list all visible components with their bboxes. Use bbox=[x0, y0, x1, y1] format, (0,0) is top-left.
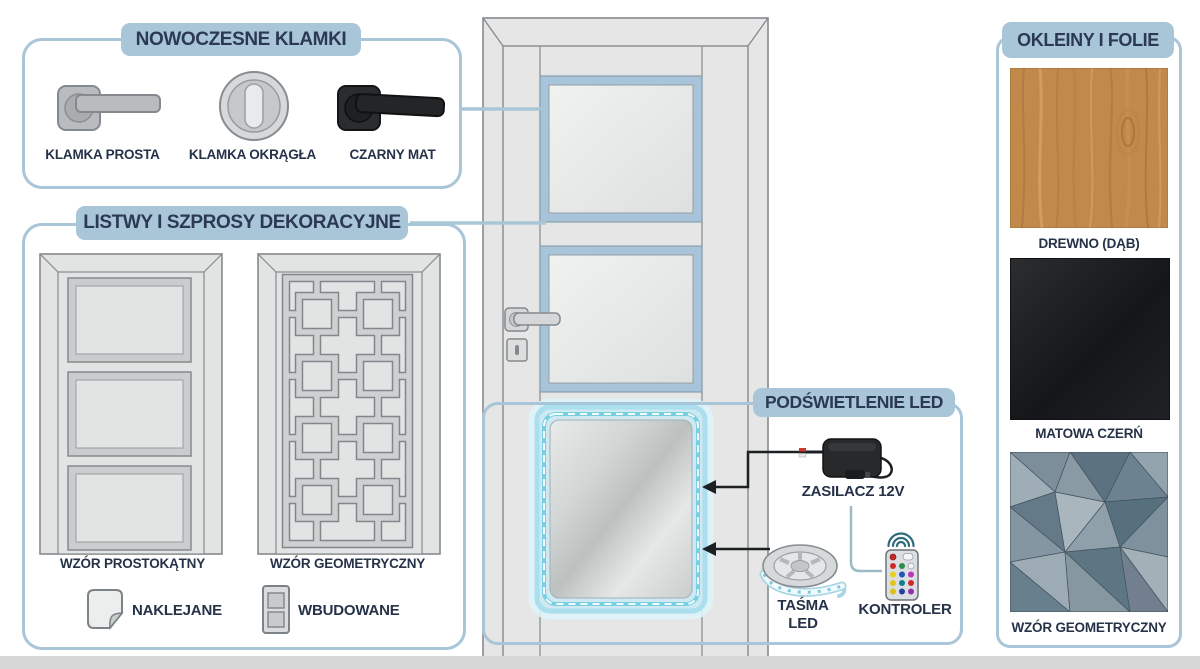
black-lever-handle-icon bbox=[330, 78, 450, 140]
footer-strip bbox=[0, 656, 1200, 669]
handle-label: KLAMKA PROSTA bbox=[30, 147, 175, 163]
geometric-pattern-door-icon bbox=[256, 252, 442, 556]
led-strip-reel-icon bbox=[756, 540, 850, 604]
led-item-label: KONTROLER bbox=[843, 601, 967, 619]
lever-handle-icon bbox=[48, 78, 168, 140]
led-item-label: TAŚMA LED bbox=[768, 597, 838, 632]
molding-pattern-label: WZÓR GEOMETRYCZNY bbox=[255, 556, 440, 572]
rectangular-pattern-door-icon bbox=[38, 252, 224, 556]
door-lock-icon bbox=[507, 339, 527, 361]
handle-label: KLAMKA OKRĄGŁA bbox=[180, 147, 325, 163]
veneer-label: MATOWA CZERŃ bbox=[1010, 426, 1168, 442]
veneers-title: OKLEINY I FOLIE bbox=[1002, 22, 1174, 58]
led-title: PODŚWIETLENIE LED bbox=[753, 388, 955, 417]
legend-label: NAKLEJANE bbox=[132, 602, 252, 620]
door-glass-panel-middle bbox=[540, 246, 702, 392]
built-in-panel-icon bbox=[258, 584, 294, 636]
oak-wood-swatch bbox=[1010, 68, 1168, 228]
led-item-label: ZASILACZ 12V bbox=[788, 483, 918, 501]
molding-pattern-label: WZÓR PROSTOKĄTNY bbox=[40, 556, 225, 572]
veneer-label: DREWNO (DĄB) bbox=[1010, 236, 1168, 252]
wireless-waves-icon bbox=[889, 534, 914, 547]
door-glass-panel-top bbox=[540, 76, 702, 222]
matte-black-swatch bbox=[1010, 258, 1170, 420]
round-knob-icon bbox=[216, 68, 292, 144]
legend-label: WBUDOWANE bbox=[298, 602, 418, 620]
veneer-label: WZÓR GEOMETRYCZNY bbox=[1010, 620, 1168, 636]
modern-handles-title: NOWOCZESNE KLAMKI bbox=[121, 23, 361, 56]
sticker-icon bbox=[84, 586, 128, 632]
moldings-title: LISTWY I SZPROSY DEKORACYJNE bbox=[76, 206, 408, 240]
rgb-remote-icon bbox=[878, 524, 926, 606]
handle-label: CZARNY MAT bbox=[335, 147, 450, 163]
door-customization-infographic: NOWOCZESNE KLAMKI KLAMKA PROSTA KLAMKA O… bbox=[0, 0, 1200, 669]
power-adapter-icon bbox=[795, 432, 900, 484]
geometric-pattern-swatch bbox=[1010, 452, 1168, 612]
